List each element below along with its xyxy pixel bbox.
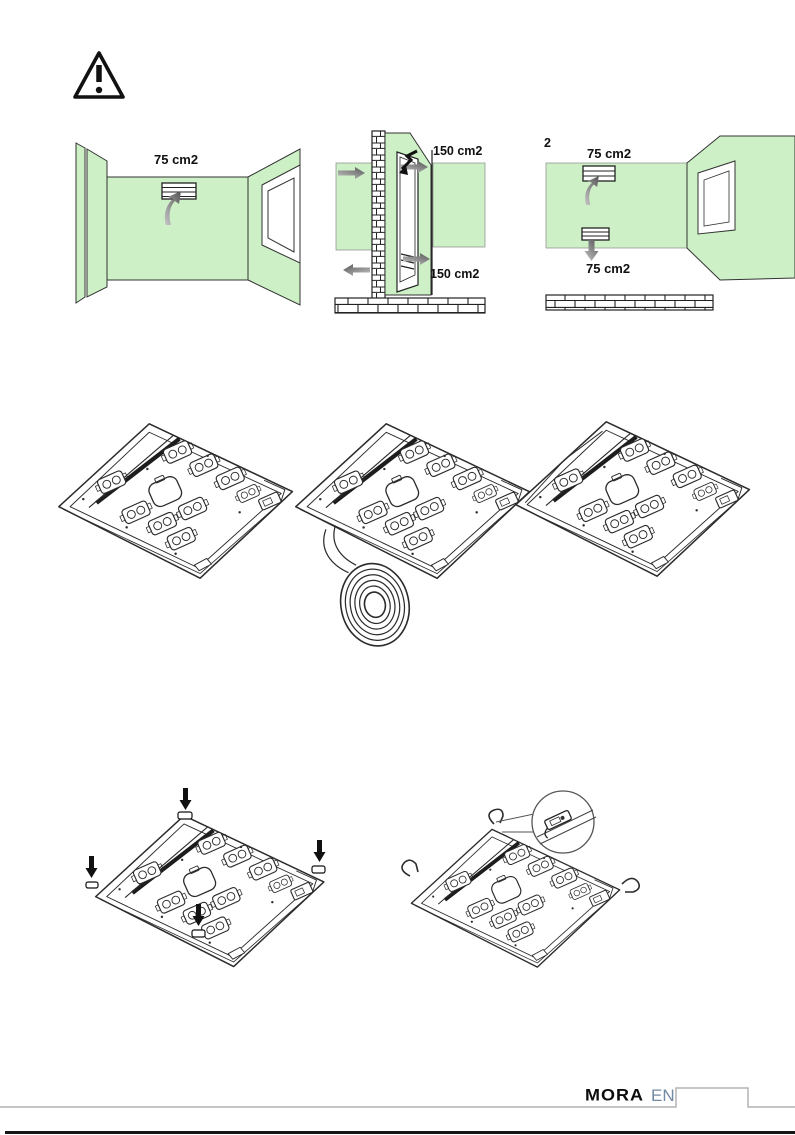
hob-underside-drawing <box>59 424 293 578</box>
warning-triangle-icon <box>70 48 128 104</box>
window-inner <box>704 171 729 226</box>
press-arrow-left <box>86 856 98 878</box>
brick-wall-column <box>372 131 385 299</box>
hob-underside-drawing <box>96 816 324 967</box>
hob-underside-drawing <box>411 829 619 967</box>
figure-hob-underside-alt <box>512 418 757 580</box>
far-wall-left <box>336 163 372 250</box>
far-wall-right <box>433 163 485 247</box>
figure-hob-press-clips <box>62 786 344 991</box>
vent-size-label-top: 150 cm2 <box>433 144 482 158</box>
brick-floor <box>335 298 485 313</box>
vent-diagram-two-vents: 2 75 cm2 75 cm2 <box>540 128 795 315</box>
vent-size-label-top: 75 cm2 <box>587 146 631 161</box>
callout-circle <box>532 791 596 853</box>
figure-hob-underside <box>55 420 300 582</box>
page-bottom-rule <box>5 1131 795 1134</box>
vent-diagram-room-high: 75 cm2 <box>60 135 302 315</box>
label-fragment: 2 <box>544 136 551 150</box>
hob-underside-drawing <box>516 422 750 576</box>
left-wall <box>87 149 107 297</box>
press-arrow-right <box>314 840 326 862</box>
press-arrow-top <box>180 788 192 810</box>
left-wall-edge <box>76 143 85 303</box>
hob-underside-drawing <box>296 424 530 579</box>
figure-hob-seal-tape <box>292 420 537 650</box>
vent-diagram-door: 150 cm2 150 cm2 <box>333 125 505 315</box>
manual-page: 75 cm2 150 cm2 150 cm2 2 <box>0 0 795 1135</box>
vent-size-label-bottom: 75 cm2 <box>586 261 630 276</box>
lower-vent-grille <box>582 228 609 240</box>
figure-hob-clip-detail <box>390 780 680 980</box>
wall <box>546 163 687 248</box>
upper-vent-grille <box>583 166 615 181</box>
brick-floor <box>546 295 713 310</box>
vent-size-label: 75 cm2 <box>154 152 198 167</box>
airflow-out-arrow <box>343 264 370 276</box>
vent-size-label-bottom: 150 cm2 <box>430 267 479 281</box>
footer-tab-rule <box>0 1084 795 1110</box>
